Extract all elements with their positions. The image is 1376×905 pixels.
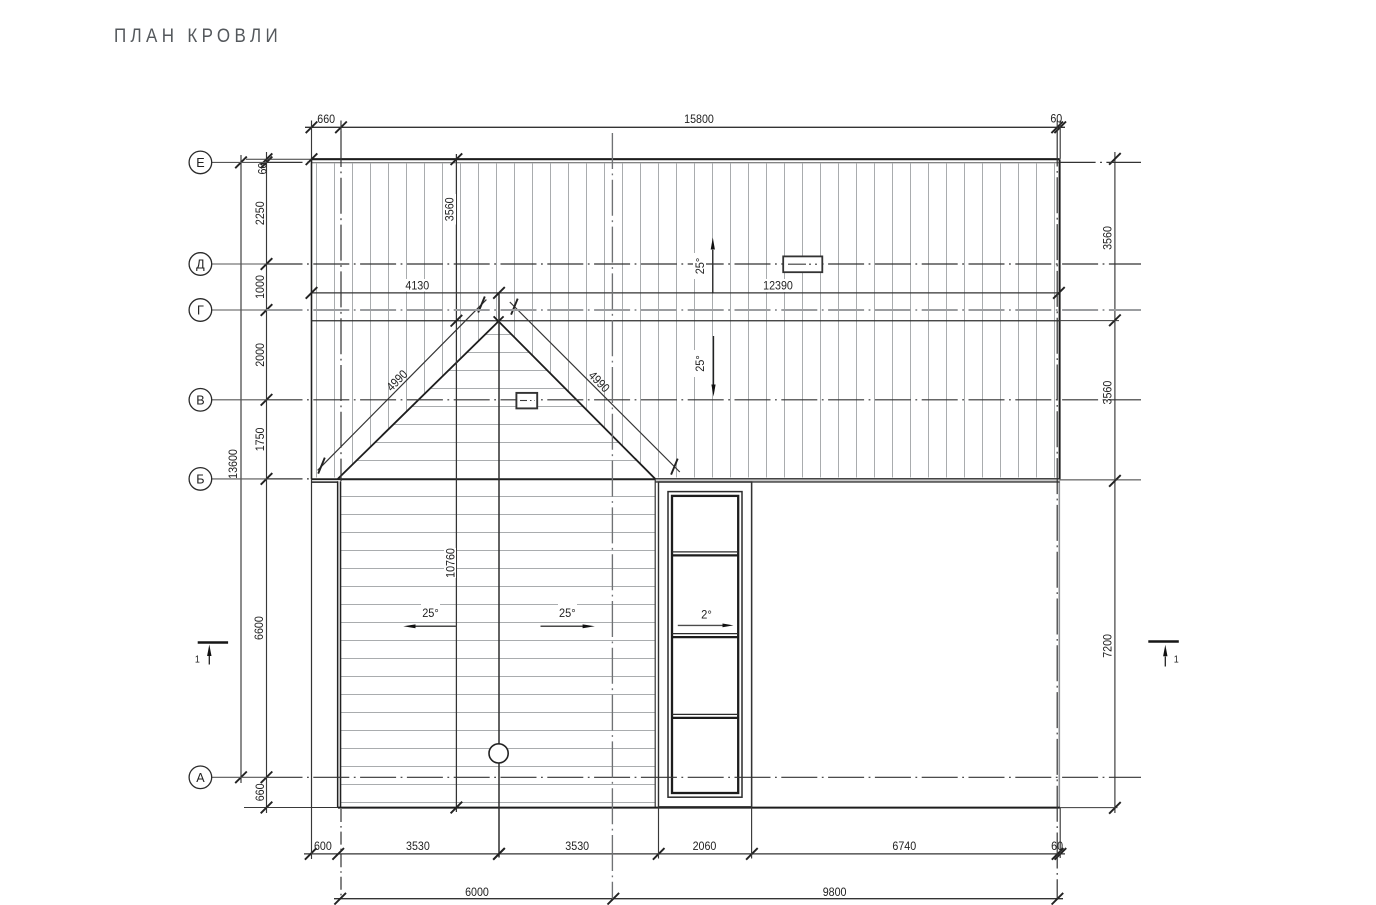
svg-text:660: 660 bbox=[253, 783, 267, 801]
svg-text:10760: 10760 bbox=[443, 548, 457, 578]
svg-text:3530: 3530 bbox=[406, 839, 430, 853]
svg-text:2250: 2250 bbox=[253, 201, 267, 225]
svg-text:Е: Е bbox=[196, 156, 204, 170]
svg-text:9800: 9800 bbox=[823, 885, 847, 899]
svg-text:25°: 25° bbox=[422, 606, 439, 620]
svg-text:1: 1 bbox=[1174, 653, 1179, 665]
svg-text:3560: 3560 bbox=[1100, 381, 1114, 405]
svg-text:25°: 25° bbox=[693, 355, 707, 372]
svg-text:2°: 2° bbox=[701, 607, 712, 621]
svg-text:15800: 15800 bbox=[684, 112, 714, 126]
svg-text:Д: Д bbox=[196, 258, 205, 272]
svg-text:2060: 2060 bbox=[693, 839, 717, 853]
svg-text:60: 60 bbox=[1051, 839, 1063, 853]
svg-text:3560: 3560 bbox=[443, 197, 457, 221]
svg-text:600: 600 bbox=[314, 839, 332, 853]
svg-text:Г: Г bbox=[197, 304, 204, 318]
svg-text:12390: 12390 bbox=[763, 279, 793, 293]
svg-text:1000: 1000 bbox=[253, 275, 267, 299]
svg-text:60: 60 bbox=[256, 162, 270, 174]
svg-text:7200: 7200 bbox=[1101, 634, 1115, 658]
svg-text:4130: 4130 bbox=[405, 279, 429, 293]
svg-text:25°: 25° bbox=[559, 606, 576, 620]
svg-text:ПЛАН КРОВЛИ: ПЛАН КРОВЛИ bbox=[114, 25, 282, 47]
svg-text:1750: 1750 bbox=[253, 427, 267, 451]
svg-text:А: А bbox=[196, 771, 205, 785]
svg-text:13600: 13600 bbox=[226, 449, 240, 479]
svg-text:6000: 6000 bbox=[465, 885, 489, 899]
svg-text:2000: 2000 bbox=[253, 343, 267, 367]
svg-text:3560: 3560 bbox=[1100, 226, 1114, 250]
svg-text:6600: 6600 bbox=[252, 616, 266, 640]
svg-text:1: 1 bbox=[195, 653, 200, 665]
svg-text:6740: 6740 bbox=[892, 839, 916, 853]
svg-text:3530: 3530 bbox=[565, 839, 589, 853]
svg-text:Б: Б bbox=[196, 472, 204, 486]
svg-text:25°: 25° bbox=[693, 258, 707, 275]
svg-text:660: 660 bbox=[317, 112, 335, 126]
svg-text:60: 60 bbox=[1050, 112, 1062, 126]
svg-text:В: В bbox=[196, 393, 204, 407]
